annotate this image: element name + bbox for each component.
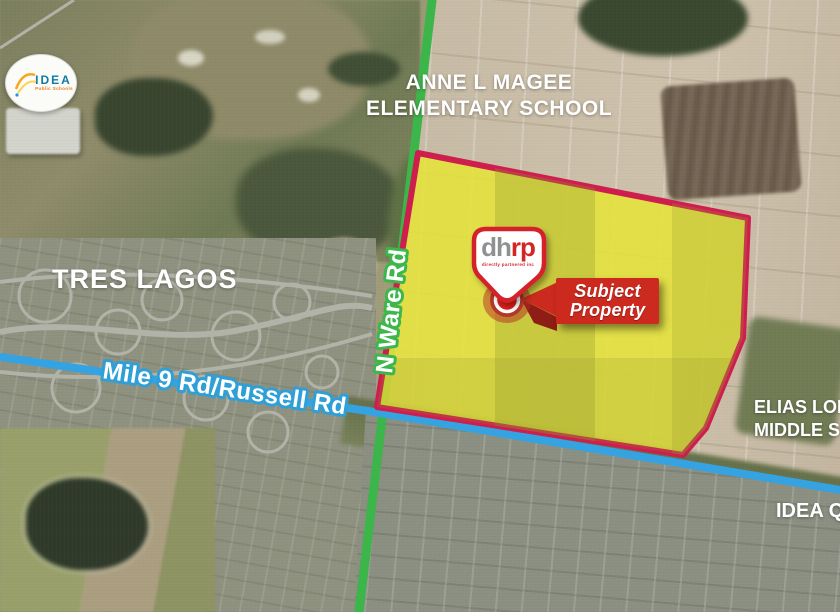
anne-magee-school-label-line2: ELEMENTARY SCHOOL: [358, 96, 620, 122]
elias-longoria-label-line1: ELIAS LONGORIA: [754, 396, 840, 419]
dhrp-logo-letter: d: [481, 232, 496, 262]
idea-quest-label: IDEA QUEST: [776, 500, 840, 523]
idea-logo-name: IDEA: [35, 74, 73, 86]
idea-logo-text: IDEA Public Schools: [35, 74, 73, 92]
street-curve: [0, 0, 74, 48]
tres-lagos-label: TRES LAGOS: [52, 264, 238, 295]
culdesac-street: [248, 412, 288, 452]
culdesac-street: [274, 284, 310, 320]
dhrp-logo-letters: rp: [511, 232, 535, 262]
dhrp-logo-letter: h: [496, 232, 511, 262]
idea-logo-subtext: Public Schools: [35, 86, 73, 92]
subject-property-label-line1: Subject: [574, 282, 640, 301]
dhrp-logo-tagline: directly partnered inc: [472, 262, 544, 268]
dhrp-logo: dhrp directly partnered inc: [472, 234, 544, 268]
anne-magee-school-label-line1: ANNE L MAGEE: [358, 70, 620, 96]
subject-property-label-line2: Property: [570, 301, 646, 320]
anne-magee-school-label: ANNE L MAGEE ELEMENTARY SCHOOL: [358, 70, 620, 122]
elias-longoria-label-line2: MIDDLE SCHOOL: [754, 419, 840, 442]
elias-longoria-school-label: ELIAS LONGORIA MIDDLE SCHOOL: [754, 396, 840, 442]
aerial-property-map: Mile 9 Rd/Russell Rd N Ware Rd dhrp dire…: [0, 0, 840, 612]
idea-swoosh-icon: [13, 67, 37, 99]
field-shade: [360, 358, 760, 468]
subject-property-banner: Subject Property: [556, 278, 659, 324]
idea-public-schools-logo: IDEA Public Schools: [5, 54, 77, 112]
culdesac-street: [306, 356, 338, 388]
